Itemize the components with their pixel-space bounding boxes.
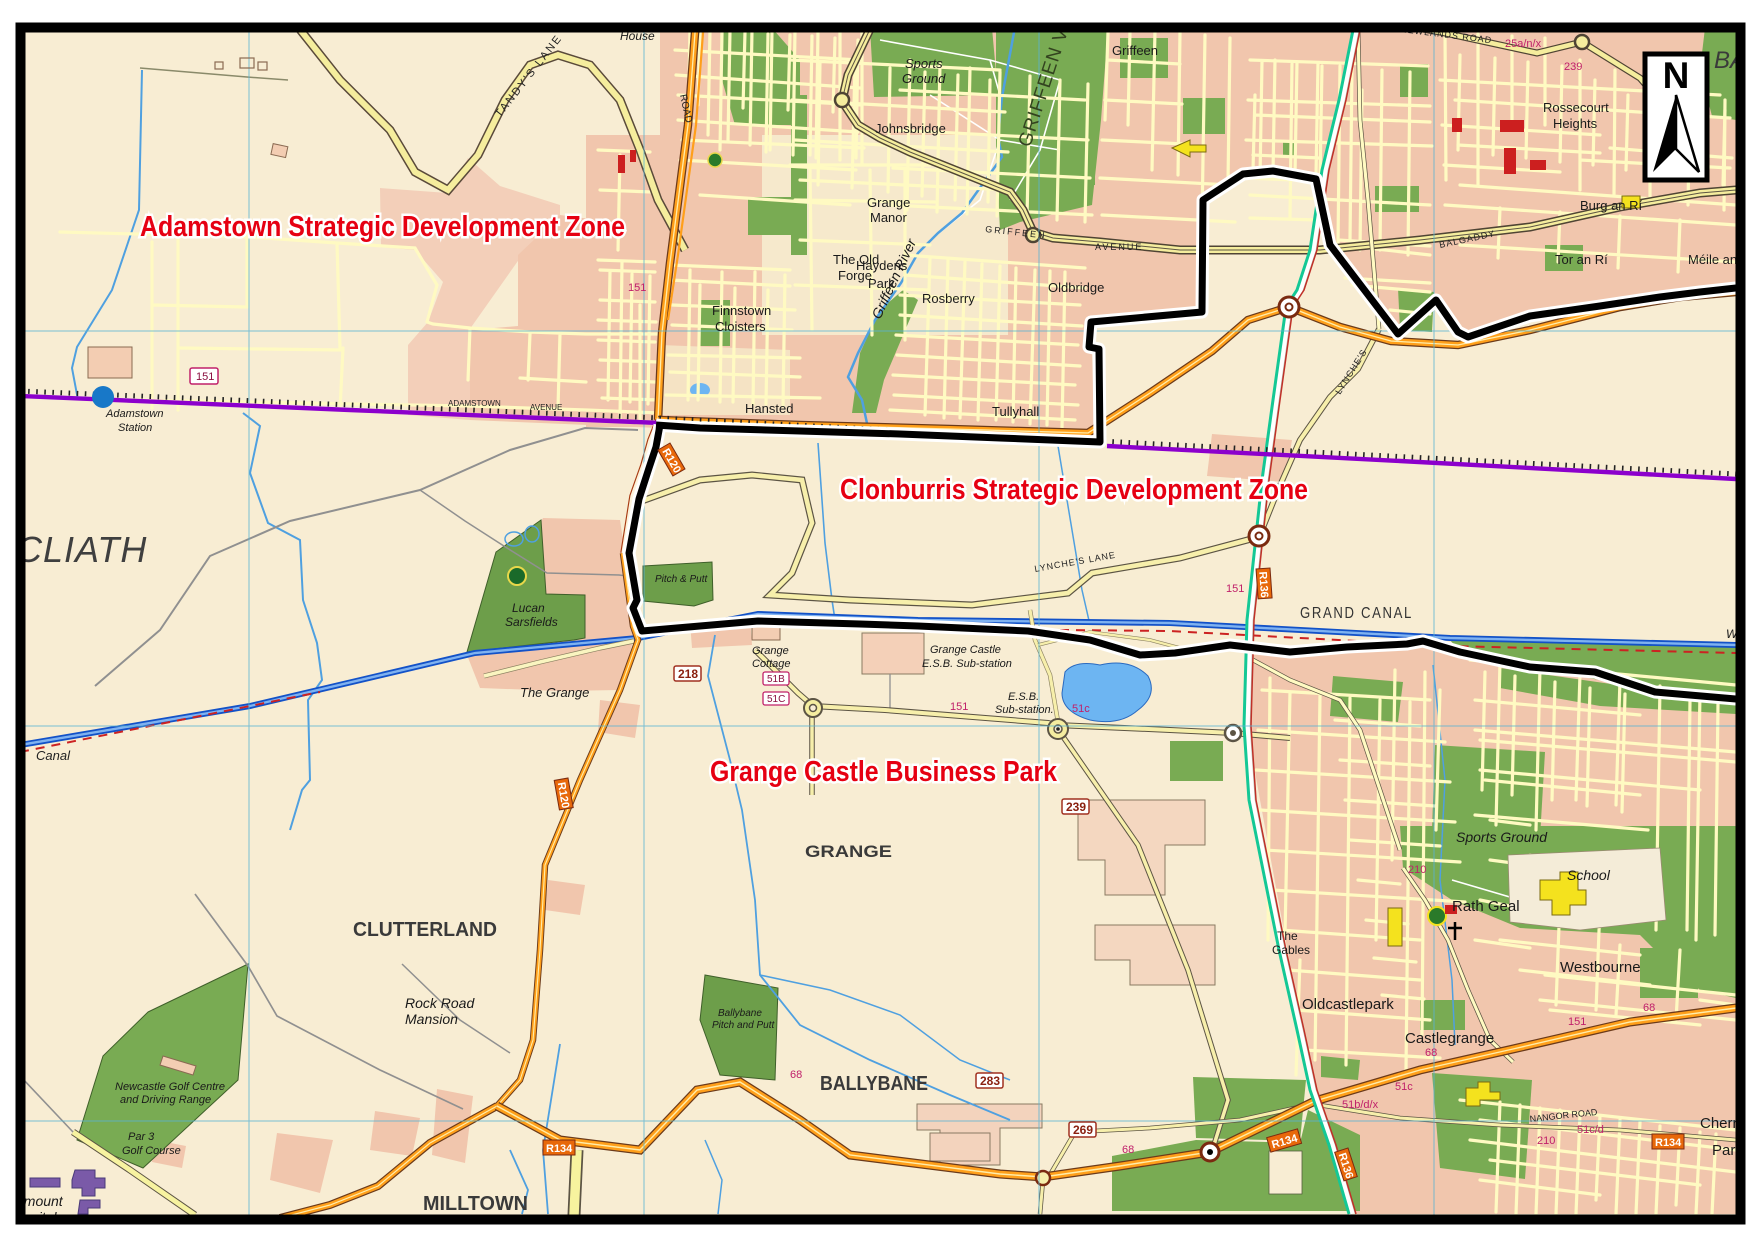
svg-text:Adamstown Strategic Developmen: Adamstown Strategic Development Zone (140, 211, 625, 243)
svg-text:Gables: Gables (1272, 943, 1310, 957)
svg-text:Rath Geal: Rath Geal (1452, 898, 1520, 915)
svg-text:151: 151 (628, 282, 646, 294)
svg-text:Pitch & Putt: Pitch & Putt (655, 574, 708, 585)
svg-text:269: 269 (1073, 1123, 1093, 1137)
svg-text:Tullyhall: Tullyhall (992, 404, 1039, 419)
svg-text:Station: Station (118, 422, 152, 434)
svg-text:Grange Castle Business Park: Grange Castle Business Park (710, 756, 1058, 788)
svg-text:210: 210 (1408, 864, 1426, 876)
svg-text:239: 239 (1564, 61, 1582, 73)
svg-text:Cloisters: Cloisters (715, 319, 766, 334)
svg-text:Sarsfields: Sarsfields (505, 615, 558, 629)
svg-text:151: 151 (950, 701, 968, 713)
svg-text:68: 68 (1122, 1144, 1134, 1156)
svg-text:R134: R134 (546, 1143, 573, 1155)
svg-text:25a/n/x: 25a/n/x (1505, 38, 1542, 50)
svg-text:51c: 51c (1072, 703, 1090, 715)
svg-text:BALLYBANE: BALLYBANE (820, 1073, 928, 1095)
svg-text:AVENUE: AVENUE (530, 403, 562, 412)
svg-text:AVENUE: AVENUE (1095, 242, 1143, 252)
svg-text:Grange: Grange (867, 195, 910, 210)
svg-text:239: 239 (1066, 800, 1086, 814)
svg-text:Manor: Manor (870, 210, 908, 225)
svg-text:R134: R134 (1655, 1137, 1682, 1149)
svg-text:Castlegrange: Castlegrange (1405, 1030, 1494, 1047)
svg-text:Méile an: Méile an (1688, 252, 1737, 267)
svg-text:Finnstown: Finnstown (712, 303, 771, 318)
svg-text:68: 68 (1643, 1002, 1655, 1014)
svg-text:283: 283 (980, 1074, 1000, 1088)
svg-text:Johnsbridge: Johnsbridge (875, 121, 946, 136)
svg-text:ADAMSTOWN: ADAMSTOWN (448, 399, 501, 408)
svg-text:Clonburris Strategic Developme: Clonburris Strategic Development Zone (840, 474, 1308, 506)
svg-text:Cottage: Cottage (752, 658, 791, 670)
svg-text:E.S.B.: E.S.B. (1008, 691, 1039, 703)
svg-text:Tor an Rí: Tor an Rí (1555, 252, 1608, 267)
svg-text:MILLTOWN: MILLTOWN (423, 1193, 528, 1215)
svg-text:The Grange: The Grange (520, 685, 589, 700)
svg-text:CLUTTERLAND: CLUTTERLAND (353, 919, 497, 941)
svg-text:68: 68 (1425, 1047, 1437, 1059)
svg-text:E.S.B. Sub-station: E.S.B. Sub-station (922, 658, 1012, 670)
svg-text:School: School (1567, 867, 1611, 883)
svg-text:Ballybane: Ballybane (718, 1008, 762, 1019)
svg-text:218: 218 (678, 667, 698, 681)
svg-text:Hansted: Hansted (745, 401, 793, 416)
svg-text:Grange: Grange (752, 645, 789, 657)
svg-text:Griffeen: Griffeen (1112, 43, 1158, 58)
svg-text:Oldbridge: Oldbridge (1048, 280, 1104, 295)
svg-text:Rock Road: Rock Road (405, 995, 475, 1011)
svg-text:Rosberry: Rosberry (922, 291, 975, 306)
svg-text:Par 3: Par 3 (128, 1131, 155, 1143)
svg-text:210: 210 (1537, 1135, 1555, 1147)
svg-text:and Driving Range: and Driving Range (120, 1094, 211, 1106)
svg-text:151: 151 (1226, 583, 1244, 595)
svg-text:68: 68 (790, 1069, 802, 1081)
svg-text:Sub-station.: Sub-station. (995, 704, 1054, 716)
svg-text:51B: 51B (767, 674, 785, 685)
svg-text:N: N (1663, 55, 1690, 96)
svg-text:Oldcastlepark: Oldcastlepark (1302, 996, 1394, 1013)
svg-text:Lucan: Lucan (512, 601, 545, 615)
svg-text:Burg an Rí: Burg an Rí (1580, 198, 1643, 213)
svg-text:151: 151 (196, 371, 214, 383)
svg-text:51C: 51C (767, 694, 785, 705)
svg-text:Rossecourt: Rossecourt (1543, 100, 1609, 115)
svg-text:Pitch and Putt: Pitch and Putt (712, 1020, 775, 1031)
svg-text:Golf Course: Golf Course (122, 1145, 181, 1157)
svg-text:Adamstown: Adamstown (105, 408, 163, 420)
svg-text:GRANGE: GRANGE (805, 842, 892, 861)
svg-text:Sports Ground: Sports Ground (1456, 829, 1548, 845)
svg-text:Grange Castle: Grange Castle (930, 644, 1001, 656)
svg-text:51c/d: 51c/d (1577, 1124, 1604, 1136)
svg-text:CLIATH: CLIATH (16, 529, 147, 570)
svg-text:Canal: Canal (36, 748, 71, 763)
svg-text:Heights: Heights (1553, 116, 1598, 131)
svg-text:Sports: Sports (905, 56, 943, 71)
svg-text:The: The (1277, 929, 1298, 943)
svg-text:R136: R136 (1256, 571, 1270, 598)
svg-text:Mansion: Mansion (405, 1011, 458, 1027)
svg-text:Westbourne: Westbourne (1560, 959, 1641, 976)
svg-text:Ground: Ground (902, 71, 946, 86)
svg-text:GRAND CANAL: GRAND CANAL (1300, 605, 1413, 622)
svg-text:151: 151 (1568, 1016, 1586, 1028)
svg-text:51b/d/x: 51b/d/x (1342, 1099, 1379, 1111)
svg-text:Newcastle Golf Centre: Newcastle Golf Centre (115, 1081, 225, 1093)
svg-text:51c: 51c (1395, 1081, 1413, 1093)
